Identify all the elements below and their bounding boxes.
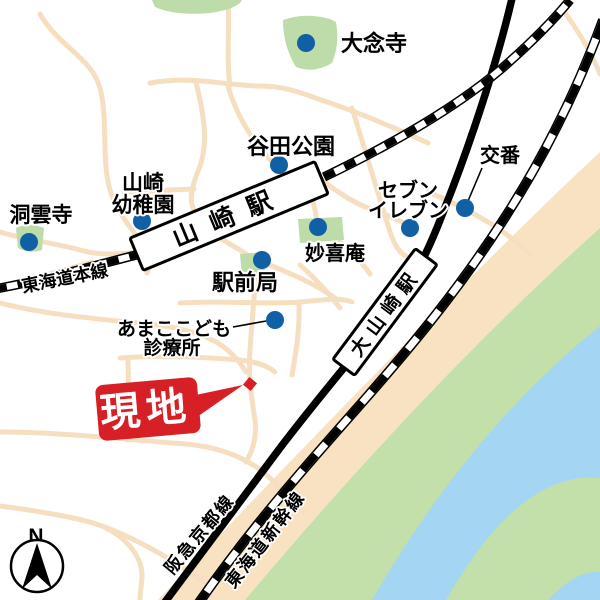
label-seven-1: セブン [378,178,438,202]
label-clinic-1: あまここども [117,318,231,340]
label-kindergarten-2: 幼稚園 [112,193,175,217]
label-kindergarten-1: 山崎 [122,172,164,195]
poi-dot-clinic [266,311,284,329]
poi-dot-myokian [309,218,327,236]
poi-dot-koban [456,199,474,217]
genchi-label: 現地 [98,384,193,436]
road [292,303,299,375]
compass: N [11,525,63,592]
label-ekimae-post: 駅前局 [212,270,278,295]
poi-dot-dainenji [297,34,315,52]
poi-dot-ekimae-post [253,251,271,269]
genchi-callout: 現地 [95,377,257,442]
label-dounji: 洞雲寺 [10,203,73,227]
label-myokian: 妙喜庵 [305,241,366,265]
label-clinic-2: 診療所 [143,336,200,359]
map-canvas: 山崎駅 大山崎駅 大念寺 谷田公園 山崎 幼稚園 洞雲寺 セブン イレブン 交番… [0,0,600,600]
label-jr-tokaido-line: 東海道本線 [20,260,110,296]
label-dainenji: 大念寺 [341,31,407,56]
poi-dot-dounji [20,233,38,251]
genchi-tip-marker [243,377,257,391]
road [102,526,142,600]
label-yatada-park: 谷田公園 [247,134,335,159]
road [180,299,352,303]
label-koban: 交番 [480,143,521,167]
label-seven-2: イレブン [368,198,448,222]
leader-koban [468,168,482,201]
road [40,14,149,273]
location-map: 山崎駅 大山崎駅 大念寺 谷田公園 山崎 幼稚園 洞雲寺 セブン イレブン 交番… [0,0,600,600]
road [228,0,230,85]
